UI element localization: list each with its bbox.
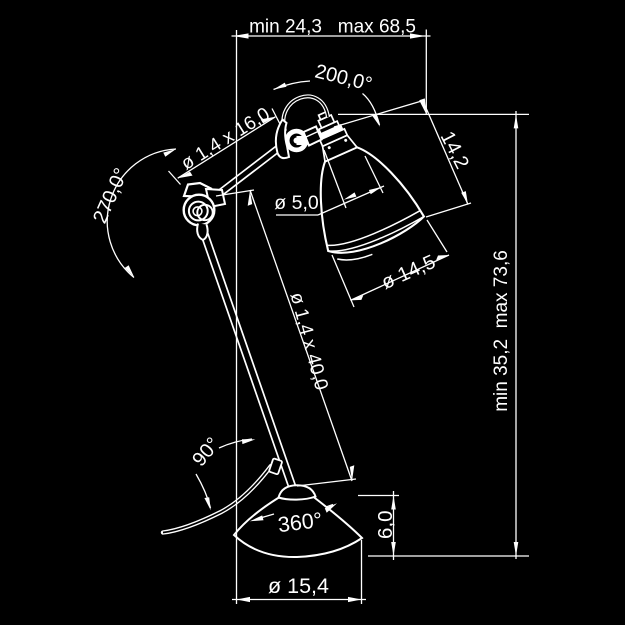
svg-text:min 24,3 max 68,5: min 24,3 max 68,5 [249, 17, 416, 38]
svg-text:ø 15,4: ø 15,4 [268, 574, 329, 598]
svg-text:min 35,2 max 73,6: min 35,2 max 73,6 [491, 250, 512, 412]
svg-text:ø 5,0: ø 5,0 [274, 192, 319, 214]
svg-text:6,0: 6,0 [374, 510, 397, 539]
